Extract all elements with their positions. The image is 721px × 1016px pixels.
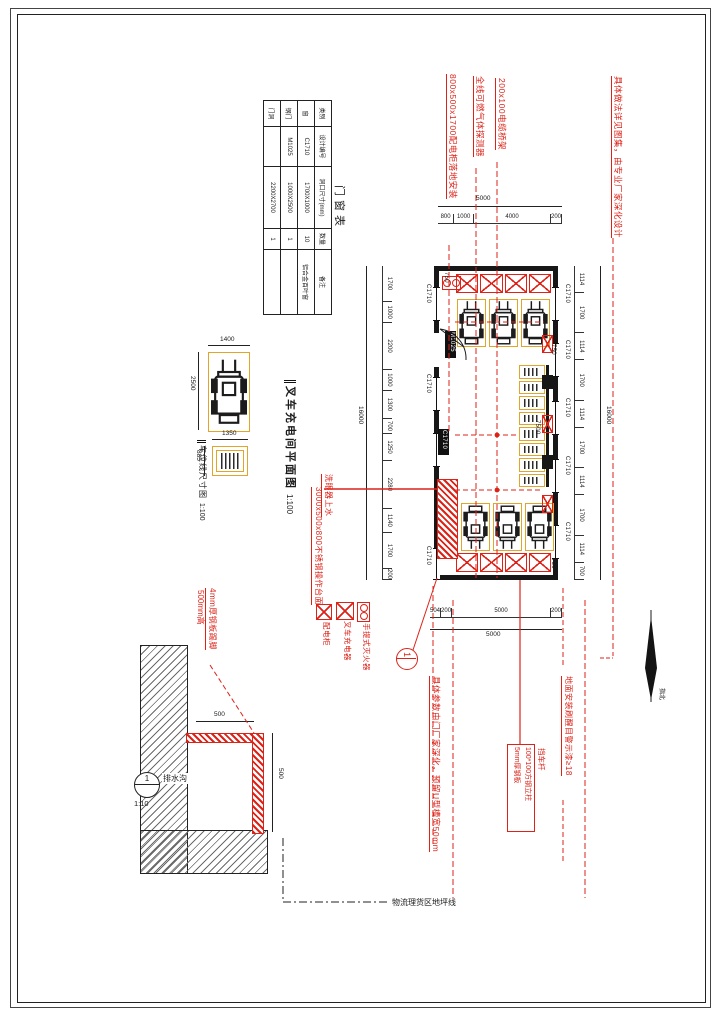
dim-value: 1700: [575, 293, 584, 334]
section-height-dim: 500: [277, 768, 284, 779]
parking-title-scale: 1:100: [198, 503, 205, 521]
dim-value: 200: [551, 214, 562, 223]
sheet-frame-inner: [17, 14, 706, 1003]
note-detail-reference: 具体做法详见图集，由专业厂家深化设计: [611, 76, 622, 238]
schedule-cell-code: M1025: [281, 127, 298, 167]
charger-x-symbol: [505, 274, 527, 293]
section-floor-hatch: [140, 830, 268, 874]
dim-top-segments: 80010004000200: [438, 214, 562, 224]
charger-strip-bottom: [456, 553, 551, 572]
dim-left-overall: 16000: [357, 406, 364, 424]
window-symbol: [433, 287, 440, 321]
section-label: 排水沟: [162, 773, 188, 784]
plan-title-scale: 1:100: [285, 494, 294, 514]
dim-value: 1250: [383, 434, 392, 461]
schedule-cell-qty: 10: [298, 229, 315, 250]
charger-unit: [519, 474, 545, 488]
section-width-dim: 500: [214, 711, 225, 718]
door-tag: M1025: [448, 332, 455, 352]
window-tag: C1710: [563, 284, 570, 303]
dim-value: 700: [575, 563, 584, 580]
schedule-cell-size: 1700X1000: [298, 167, 315, 229]
dim-value: 200: [441, 608, 452, 617]
schedule-cell-remark: [264, 250, 281, 315]
window-symbol: [552, 401, 559, 435]
parking-stall-symbol: [208, 352, 250, 432]
schedule-row: 门洞 2200X2700 1: [264, 101, 281, 315]
detail-marker-scale: 1:10: [134, 799, 149, 808]
legend-label: 叉车充电器: [343, 621, 351, 661]
schedule-cell-code: C1710: [298, 127, 315, 167]
detail-callout-number: 1: [401, 652, 411, 657]
forklift-symbol: [461, 503, 490, 551]
schedule-cell-qty: 1: [281, 229, 298, 250]
note-warning-paint: 地面安装刷醒目警示漆≥18: [561, 676, 572, 776]
note-distribution-cabinet: 800x500x1700配电柜落地安装: [446, 74, 457, 199]
detail-marker-number: 1: [145, 774, 149, 783]
callout-line: [396, 658, 416, 659]
plan-title-text: 叉车充电间平面图: [284, 386, 296, 490]
dim-value: 1000: [383, 370, 392, 392]
dim-value: 1700: [383, 533, 392, 569]
charger-stall-symbol: [212, 446, 248, 476]
dim-line: [600, 266, 601, 580]
stall-width-dim: 1400: [220, 336, 234, 343]
window-symbol: [552, 459, 559, 493]
charger-unit: [519, 443, 545, 457]
drawing-sheet: 门窗表 类别设计编号洞口尺寸(mm)数量备注 窗 C1710 1700X1000…: [0, 0, 721, 1016]
dim-value: 1140: [383, 509, 392, 533]
schedule-cell-qty: 1: [264, 229, 281, 250]
schedule-cell-size: 1000X2500: [281, 167, 298, 229]
dim-value: 1000: [383, 302, 392, 324]
note-cable-tray: 200x100电缆桥架: [495, 78, 506, 150]
window-tag: C1710: [563, 522, 570, 541]
charger-x-symbol: [456, 274, 478, 293]
schedule-cell-remark: [281, 250, 298, 315]
dim-line: [366, 266, 367, 580]
charger-x-symbol: [529, 553, 551, 572]
dim-value: 800: [438, 214, 454, 223]
schedule-title: 门窗表: [332, 100, 348, 315]
dim-line: [272, 733, 273, 832]
schedule-cell-code: [264, 127, 281, 167]
operating-table-hatch: [437, 479, 458, 559]
dim-line: [198, 352, 199, 430]
charger-unit: [519, 396, 545, 410]
dim-value: 1700: [575, 360, 584, 401]
dim-line: [430, 629, 562, 630]
window-symbol: [552, 287, 559, 321]
charger-x-symbol: [456, 553, 478, 572]
dim-value: 200: [551, 608, 562, 617]
window-tag: C1710: [563, 398, 570, 417]
window-tag: C1710: [424, 284, 431, 303]
dim-line: [196, 721, 254, 722]
schedule-header-cell: 设计编号: [315, 127, 332, 167]
dim-line: [438, 206, 562, 207]
schedule-cell-category: 门洞: [264, 101, 281, 127]
dim-value: 1700: [575, 495, 584, 536]
window-tag: C1710: [424, 546, 431, 565]
forklift-symbol: [457, 299, 486, 347]
wall-box: [542, 375, 553, 389]
floor-line-label: 物流理货区地坪线: [392, 897, 456, 908]
note-skirting-2: 500mm高: [195, 590, 204, 625]
note-gas-detector: 全线可燃气体探测器: [473, 76, 484, 157]
door-tag-chip: M1025: [445, 331, 456, 358]
dim-bottom-segments: 5042005000200: [430, 608, 562, 618]
window-tag: C1710: [563, 456, 570, 475]
dim-left-segments: 1700100022001000130070012502280114017002…: [382, 266, 392, 580]
dim-line: [208, 345, 250, 346]
dim-line: [212, 439, 248, 440]
dim-value: 1114: [575, 401, 584, 428]
detail-marker: 1: [134, 772, 160, 798]
legend-label: 配电柜: [322, 622, 330, 646]
window-symbol: [433, 377, 440, 411]
x-box-icon: [316, 604, 332, 620]
schedule-header-cell: 备注: [315, 250, 332, 315]
dim-value: 200: [383, 569, 392, 580]
dim-bottom-overall: 5000: [486, 631, 500, 638]
barrier-spec-2: 100*100方钢立柱: [523, 747, 531, 801]
schedule-header-cell: 类别: [315, 101, 332, 127]
schedule-table: 类别设计编号洞口尺寸(mm)数量备注 窗 C1710 1700X1000 10 …: [263, 100, 332, 315]
schedule-cell-remark: 铝合金百叶窗: [298, 250, 315, 315]
note-steel-table: 3000x500x800不锈钢操作台面: [311, 487, 322, 605]
dim-value: 5000: [452, 608, 551, 617]
charger-x-symbol: [480, 274, 502, 293]
schedule-header-cell: 数量: [315, 229, 332, 250]
wall-charger-x-symbol: [542, 495, 553, 513]
charger-depth-dim: 885: [195, 450, 202, 461]
schedule-cell-category: 窗: [298, 101, 315, 127]
dim-right-segments: 111417001114170011141700111417001114700: [574, 266, 584, 580]
steel-plate-top: [186, 733, 260, 743]
wall-box: [542, 455, 553, 469]
rack-dim: 7500: [533, 420, 540, 435]
window-tag-chip: C1710: [438, 429, 449, 455]
north-label: 指北: [657, 688, 664, 700]
spacing-dim: 750: [549, 344, 556, 355]
forklift-symbol: [489, 299, 518, 347]
window-tag: C1710: [440, 430, 447, 449]
dim-right-overall: 16000: [605, 406, 612, 424]
dim-value: 1114: [575, 266, 584, 293]
note-door-spec: 具体参数由门厂家深化，预留U型槽宽50mm: [429, 676, 440, 852]
schedule-header-row: 类别设计编号洞口尺寸(mm)数量备注: [315, 101, 332, 315]
barrier-label: 挡车杆: [537, 748, 545, 771]
spacing-dim: 750: [549, 558, 556, 569]
dim-value: 1114: [575, 468, 584, 495]
dim-value: 2280: [383, 461, 392, 509]
x-box-icon: [336, 602, 354, 620]
window-tag: C1710: [563, 340, 570, 359]
dim-value: 700: [383, 419, 392, 434]
dim-value: 1700: [575, 428, 584, 469]
dim-value: 1114: [575, 333, 584, 360]
door-window-schedule: 门窗表 类别设计编号洞口尺寸(mm)数量备注 窗 C1710 1700X1000…: [263, 100, 348, 315]
charger-x-symbol: [480, 553, 502, 572]
plan-title: 叉车充电间平面图1:100: [284, 380, 296, 514]
door-opening: [433, 333, 440, 367]
dim-top-overall: 5000: [476, 195, 490, 202]
forklift-symbol: [493, 503, 522, 551]
dim-value: 2200: [383, 323, 392, 369]
dim-value: 1000: [454, 214, 474, 223]
note-skirting-1: 4mm厚钢板踢脚: [205, 588, 216, 650]
legend-label: 手提式灭火器: [362, 623, 370, 671]
charger-unit: [216, 450, 244, 472]
dim-value: 1700: [383, 266, 392, 302]
dim-value: 4000: [474, 214, 551, 223]
stall-depth-dim: 2500: [189, 376, 196, 390]
schedule-row: 钢门 M1025 1000X2500 1: [281, 101, 298, 315]
schedule-cell-category: 钢门: [281, 101, 298, 127]
dim-value: 1300: [383, 391, 392, 419]
window-tag: C1710: [424, 374, 431, 393]
schedule-header-cell: 洞口尺寸(mm): [315, 167, 332, 229]
schedule-row: 窗 C1710 1700X1000 10 铝合金百叶窗: [298, 101, 315, 315]
schedule-cell-size: 2200X2700: [264, 167, 281, 229]
charger-strip-top: [456, 274, 551, 293]
dim-value: 1114: [575, 536, 584, 563]
barrier-spec-1: 5mm厚钢板: [512, 747, 520, 784]
charger-x-symbol: [529, 274, 551, 293]
spacing-dim: 750: [442, 272, 449, 283]
charger-width-dim: 1350: [222, 430, 236, 437]
dim-line: [204, 446, 205, 476]
wall-charger-x-symbol: [542, 415, 553, 433]
dim-value: 504: [430, 608, 441, 617]
charger-x-symbol: [505, 553, 527, 572]
steel-plate-side: [252, 733, 264, 834]
fire-extinguisher-icon: [357, 602, 370, 622]
